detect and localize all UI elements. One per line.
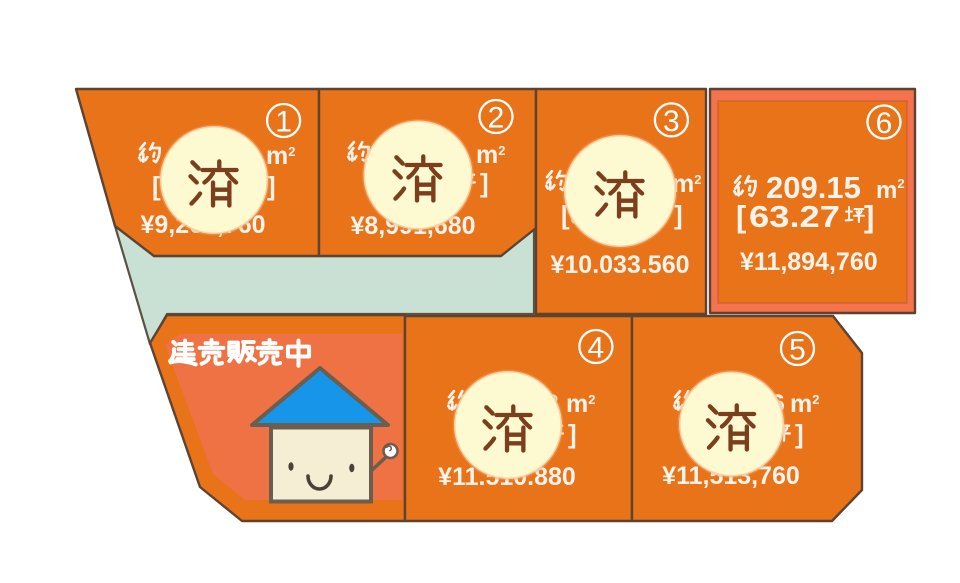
svg-text:[: [ (736, 199, 746, 234)
svg-text:¥10.033.560: ¥10.033.560 (550, 251, 689, 279)
svg-text:]: ] (795, 419, 804, 449)
svg-text:6: 6 (876, 107, 893, 140)
svg-text:3: 3 (663, 105, 680, 138)
svg-text:1: 1 (275, 106, 292, 139)
svg-text:63.27: 63.27 (749, 199, 840, 234)
svg-text:]: ] (568, 419, 577, 449)
svg-text:5: 5 (789, 334, 806, 367)
svg-text:4: 4 (588, 332, 605, 365)
svg-text:]: ] (480, 168, 489, 198)
svg-text:2: 2 (488, 102, 505, 135)
svg-text:]: ] (864, 199, 874, 234)
svg-text:¥11,894,760: ¥11,894,760 (740, 248, 878, 276)
